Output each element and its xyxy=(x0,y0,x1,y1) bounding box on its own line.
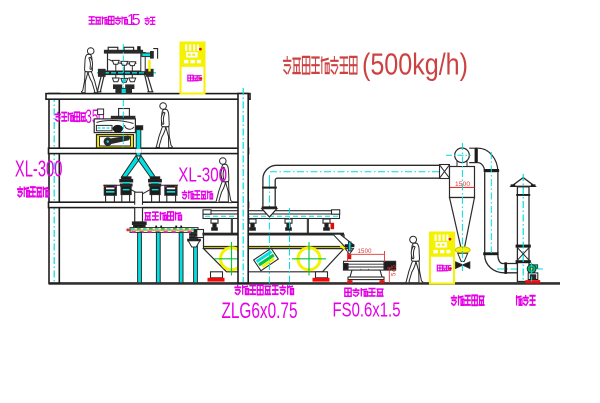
svg-text:XL-300: XL-300 xyxy=(15,156,63,182)
svg-text:(500kg/h): (500kg/h) xyxy=(362,48,468,81)
svg-text:ZLG6x0.75: ZLG6x0.75 xyxy=(222,299,298,324)
svg-text:545: 545 xyxy=(392,264,398,276)
svg-text:XL-300: XL-300 xyxy=(178,164,227,187)
svg-text:FS0.6x1.5: FS0.6x1.5 xyxy=(333,298,401,321)
svg-text:1.5: 1.5 xyxy=(127,12,141,29)
svg-text:1500: 1500 xyxy=(358,249,373,255)
